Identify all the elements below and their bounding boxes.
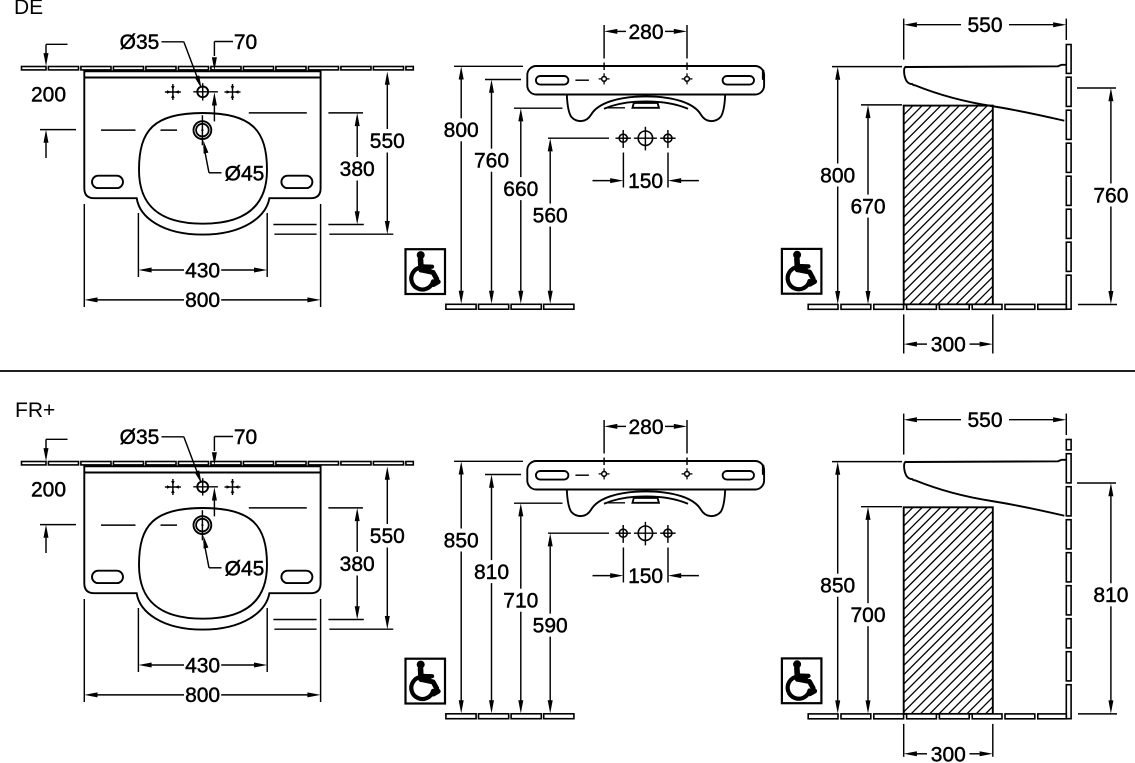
svg-text:670: 670 bbox=[850, 195, 885, 218]
svg-text:850: 850 bbox=[820, 575, 855, 598]
svg-text:800: 800 bbox=[444, 119, 479, 142]
svg-text:810: 810 bbox=[474, 561, 509, 584]
svg-text:150: 150 bbox=[628, 565, 663, 588]
svg-text:150: 150 bbox=[628, 170, 663, 193]
svg-text:800: 800 bbox=[185, 684, 220, 707]
svg-text:200: 200 bbox=[31, 84, 66, 107]
svg-text:70: 70 bbox=[234, 426, 257, 449]
svg-text:DE: DE bbox=[14, 0, 43, 19]
svg-text:300: 300 bbox=[931, 743, 966, 763]
svg-text:430: 430 bbox=[185, 259, 220, 282]
svg-text:550: 550 bbox=[967, 409, 1002, 432]
svg-text:Ø45: Ø45 bbox=[225, 163, 265, 186]
svg-text:800: 800 bbox=[185, 289, 220, 312]
svg-text:380: 380 bbox=[340, 553, 375, 576]
svg-text:430: 430 bbox=[185, 654, 220, 677]
svg-text:810: 810 bbox=[1093, 584, 1128, 607]
svg-text:550: 550 bbox=[967, 14, 1002, 37]
svg-text:550: 550 bbox=[370, 525, 405, 548]
svg-text:660: 660 bbox=[503, 178, 538, 201]
svg-text:800: 800 bbox=[820, 164, 855, 187]
svg-text:700: 700 bbox=[850, 604, 885, 627]
svg-text:280: 280 bbox=[628, 21, 663, 44]
svg-text:Ø35: Ø35 bbox=[120, 426, 160, 449]
svg-text:760: 760 bbox=[474, 150, 509, 173]
svg-text:850: 850 bbox=[444, 529, 479, 552]
svg-text:FR+: FR+ bbox=[15, 399, 55, 422]
svg-text:550: 550 bbox=[370, 130, 405, 153]
svg-text:300: 300 bbox=[931, 334, 966, 357]
svg-text:590: 590 bbox=[533, 614, 568, 637]
svg-text:Ø45: Ø45 bbox=[225, 558, 265, 581]
svg-text:200: 200 bbox=[31, 479, 66, 502]
svg-text:560: 560 bbox=[533, 204, 568, 227]
svg-text:710: 710 bbox=[503, 590, 538, 613]
svg-text:70: 70 bbox=[234, 31, 257, 54]
svg-text:380: 380 bbox=[340, 158, 375, 181]
svg-text:760: 760 bbox=[1093, 184, 1128, 207]
svg-text:280: 280 bbox=[628, 416, 663, 439]
svg-text:Ø35: Ø35 bbox=[120, 31, 160, 54]
